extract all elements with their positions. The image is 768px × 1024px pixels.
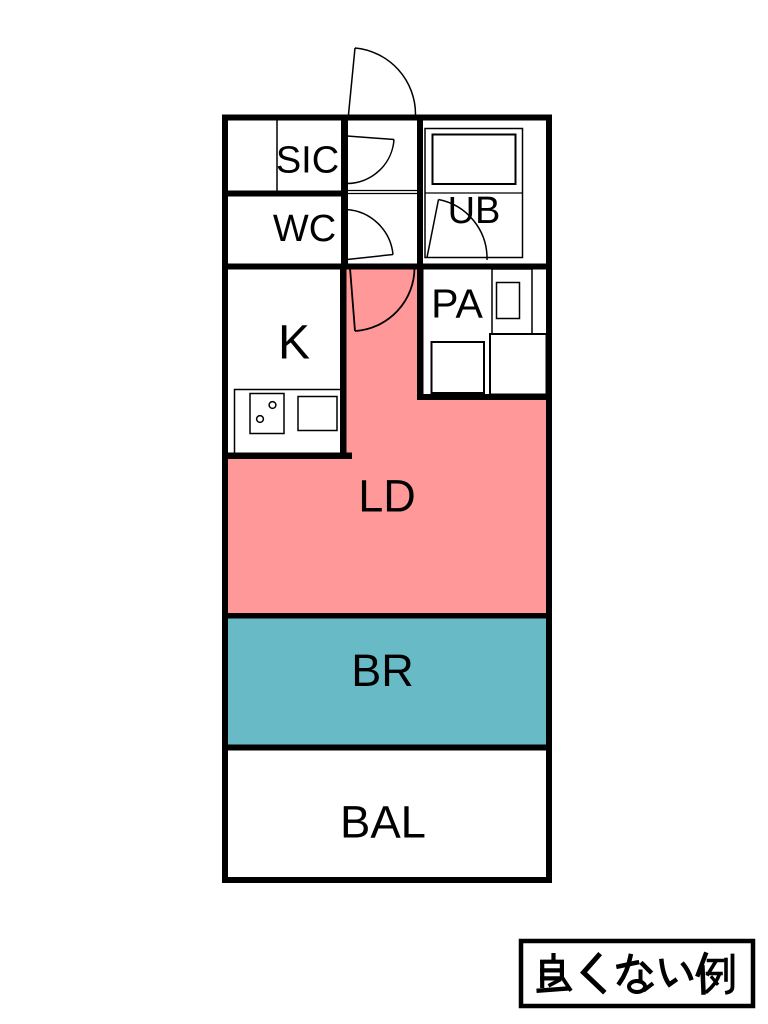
svg-text:WC: WC bbox=[273, 208, 336, 250]
svg-text:UB: UB bbox=[448, 190, 501, 232]
svg-text:LD: LD bbox=[358, 471, 416, 522]
svg-text:PA: PA bbox=[431, 281, 483, 327]
svg-text:BR: BR bbox=[351, 645, 414, 696]
svg-text:BAL: BAL bbox=[340, 797, 426, 848]
svg-text:SIC: SIC bbox=[276, 140, 339, 182]
svg-text:K: K bbox=[278, 317, 310, 370]
